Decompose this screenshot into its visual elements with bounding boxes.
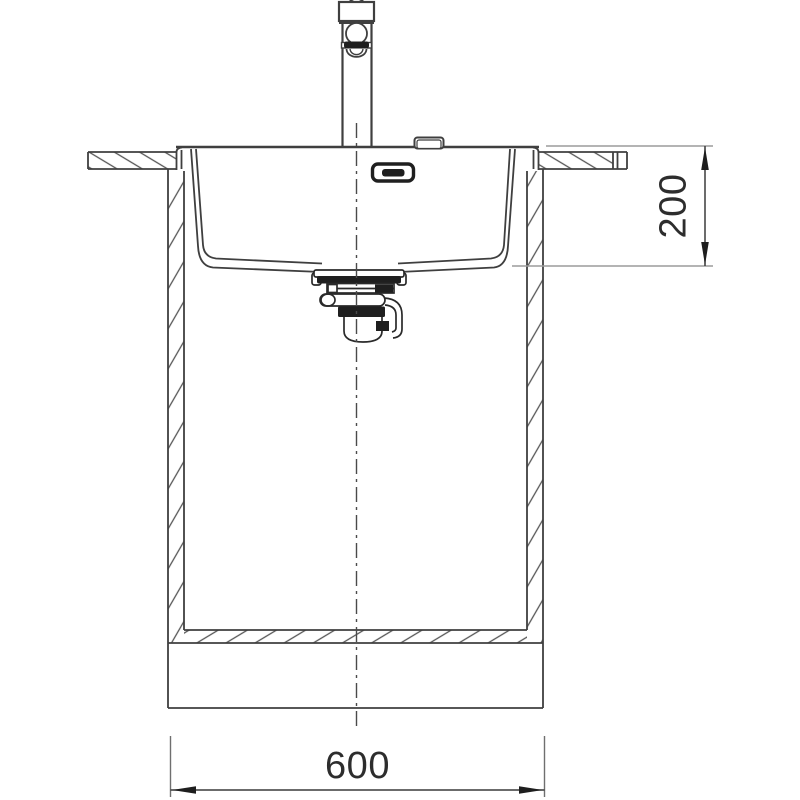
width-dimension: 600: [171, 736, 545, 797]
trap-nut: [338, 307, 385, 318]
cabinet-left-wall: [168, 169, 184, 643]
siphon-trap: [320, 294, 402, 342]
tap-handle: [342, 23, 372, 57]
strainer-flange: [317, 276, 401, 284]
sink-elevation-drawing: 200 600: [0, 0, 800, 800]
cabinet-bottom-panel: [184, 630, 527, 643]
drain-strainer: [312, 270, 406, 293]
cabinet-right-wall: [527, 169, 543, 643]
trap-tailpiece: [320, 294, 385, 306]
tap-head: [339, 2, 374, 21]
countertop-left: [88, 152, 184, 169]
overflow-outlet: [373, 164, 414, 181]
arrow-right-icon: [519, 786, 543, 793]
depth-dimension-label: 200: [653, 174, 695, 239]
tap-hole-cover: [415, 138, 444, 149]
arrow-down-icon: [701, 242, 709, 265]
width-dimension-label: 600: [325, 745, 390, 787]
arrow-up-icon: [701, 147, 709, 170]
sink-bowl: [176, 144, 539, 272]
technical-drawing: 200 600: [0, 0, 800, 800]
arrow-left-icon: [172, 786, 196, 793]
